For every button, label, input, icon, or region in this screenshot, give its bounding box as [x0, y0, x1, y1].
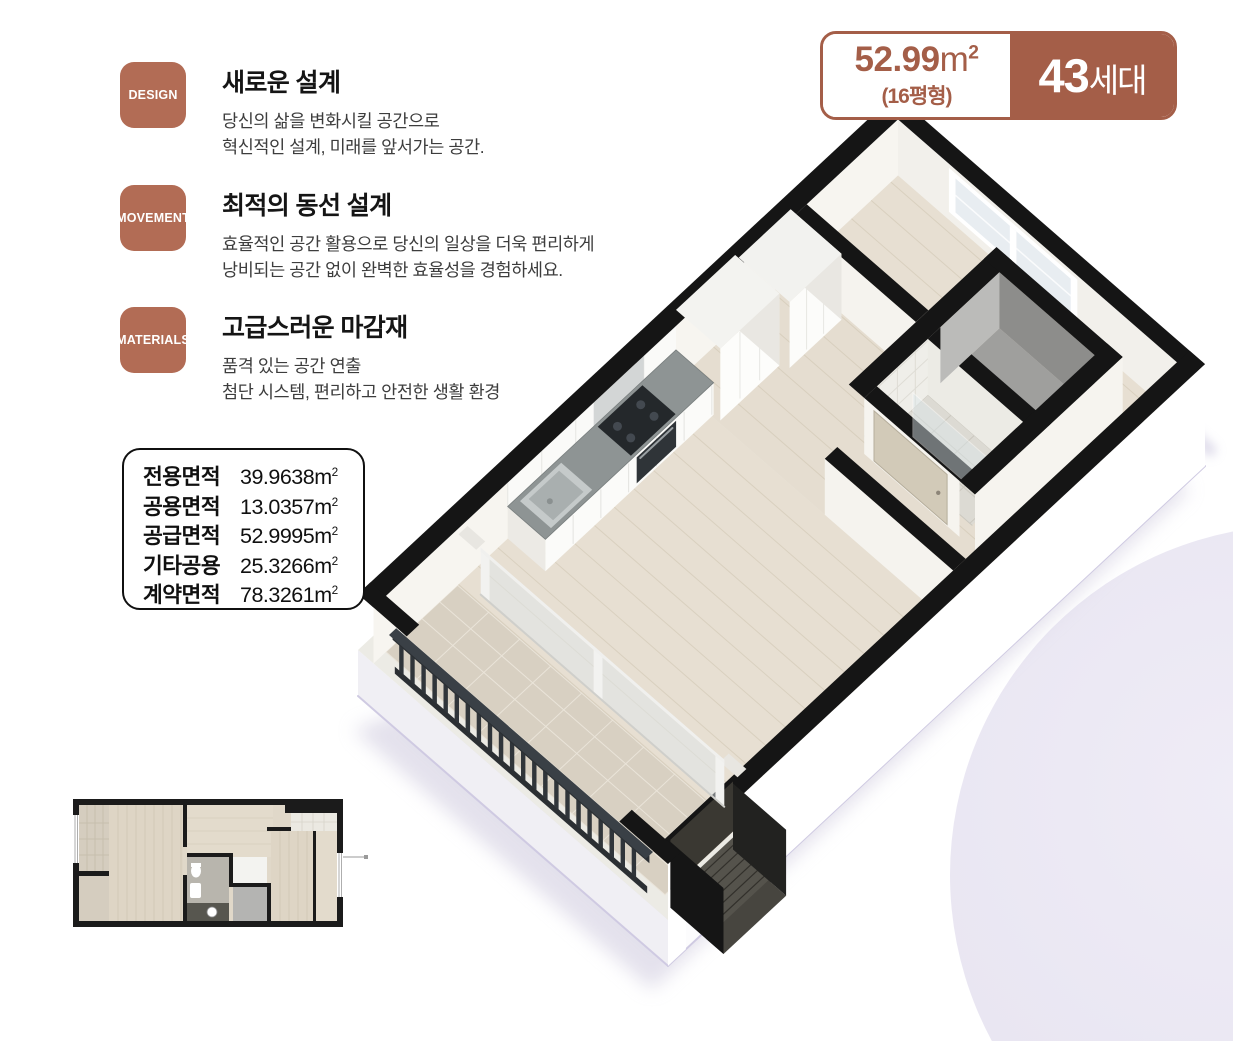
area-value: 39.9638m2 [240, 463, 338, 493]
badge-households-number: 43 [1038, 48, 1088, 103]
feature-movement-line2: 낭비되는 공간 없이 완벽한 효율성을 경험하세요. [222, 257, 594, 283]
area-table: 전용면적 39.9638m2 공용면적 13.0357m2 공급면적 52.99… [122, 448, 365, 610]
design-tag-label: DESIGN [128, 88, 177, 102]
feature-materials-title: 고급스러운 마감재 [222, 308, 500, 344]
area-row-contract: 계약면적 78.3261m2 [143, 581, 349, 611]
area-label: 공용면적 [143, 493, 240, 523]
floor-plan-2d [70, 793, 370, 933]
badge-households-suffix: 세대 [1089, 54, 1146, 102]
movement-tag-badge: MOVEMENT [120, 185, 186, 251]
area-label: 계약면적 [143, 581, 240, 611]
area-value: 25.3266m2 [240, 552, 338, 582]
feature-materials: MATERIALS 고급스러운 마감재 품격 있는 공간 연출 첨단 시스템, … [120, 307, 500, 406]
badge-area-size: 52.99m2 [855, 42, 979, 77]
area-row-supply: 공급면적 52.9995m2 [143, 522, 349, 552]
area-value: 78.3261m2 [240, 581, 338, 611]
feature-design-line2: 혁신적인 설계, 미래를 앞서가는 공간. [222, 134, 484, 160]
feature-materials-line2: 첨단 시스템, 편리하고 안전한 생활 환경 [222, 379, 500, 405]
area-badge-panel: 52.99m2 (16평형) [823, 34, 1010, 117]
feature-design: DESIGN 새로운 설계 당신의 삶을 변화시킬 공간으로 혁신적인 설계, … [120, 62, 484, 161]
area-label: 기타공용 [143, 552, 240, 582]
materials-tag-badge: MATERIALS [120, 307, 186, 373]
feature-design-line1: 당신의 삶을 변화시킬 공간으로 [222, 108, 484, 134]
area-value: 52.9995m2 [240, 522, 338, 552]
area-row-exclusive: 전용면적 39.9638m2 [143, 463, 349, 493]
feature-materials-line1: 품격 있는 공간 연출 [222, 353, 500, 379]
area-label: 전용면적 [143, 463, 240, 493]
badge-pyeong: (16평형) [882, 80, 952, 110]
design-tag-badge: DESIGN [120, 62, 186, 128]
plan2d-rooms [73, 805, 343, 921]
floorplan-poster: DESIGN 새로운 설계 당신의 삶을 변화시킬 공간으로 혁신적인 설계, … [0, 0, 1233, 1041]
materials-tag-label: MATERIALS [116, 333, 190, 347]
area-unit-badge: 52.99m2 (16평형) 43 세대 [820, 31, 1177, 120]
feature-design-title: 새로운 설계 [222, 63, 484, 99]
movement-tag-label: MOVEMENT [116, 211, 190, 225]
area-value: 13.0357m2 [240, 493, 338, 523]
feature-movement-line1: 효율적인 공간 활용으로 당신의 일상을 더욱 편리하게 [222, 231, 594, 257]
scale-leader-line [343, 855, 368, 859]
area-row-common: 공용면적 13.0357m2 [143, 493, 349, 523]
area-label: 공급면적 [143, 522, 240, 552]
area-row-other-common: 기타공용 25.3266m2 [143, 552, 349, 582]
feature-movement: MOVEMENT 최적의 동선 설계 효율적인 공간 활용으로 당신의 일상을 … [120, 185, 594, 284]
household-badge-panel: 43 세대 [1010, 34, 1174, 117]
feature-movement-title: 최적의 동선 설계 [222, 186, 594, 222]
